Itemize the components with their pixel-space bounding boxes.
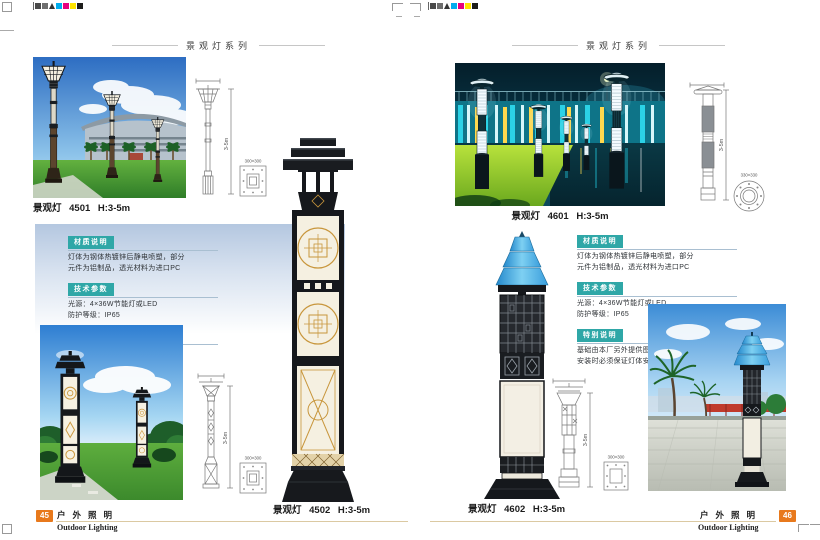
product-photo-4602 — [648, 304, 786, 491]
crop-mark-bottom-left — [2, 524, 12, 534]
section-badge: 特别说明 — [577, 329, 623, 342]
dimension-label: 3-5m — [583, 433, 589, 446]
section-rule — [577, 249, 737, 250]
info-text: 元件为铝制品，透光材料为进口PC — [577, 263, 737, 274]
info-text: 光源：4×36W节能灯或LED — [68, 300, 218, 311]
elevation-drawing-4601: 3-5m — [684, 80, 732, 208]
crop-bracket — [798, 524, 809, 532]
magenta-patch — [63, 3, 69, 9]
crop-mark-top-left — [2, 2, 12, 12]
grey-patch — [430, 3, 436, 9]
footer-title-en: Outdoor Lighting — [57, 523, 118, 532]
registration-color-bar-left — [33, 2, 83, 10]
crop-line-top-left — [0, 30, 14, 31]
info-section-material: 材质说明 灯体为钢体热镀锌后静电喷塑，部分 元件为铝制品，透光材料为进口PC — [68, 231, 218, 274]
product-label-4501: 景观灯 4501 H:3-5m — [33, 200, 130, 214]
section-rule — [68, 250, 218, 251]
info-section-material: 材质说明 灯体为钢体热镀锌后静电喷塑，部分 元件为铝制品，透光材料为进口PC — [577, 230, 737, 273]
series-header-right: 景观灯系列 — [512, 39, 725, 52]
header-rule — [659, 45, 725, 46]
section-badge: 材质说明 — [68, 236, 114, 249]
base-plan-4602: 300×300 — [601, 452, 631, 496]
elevation-drawing-4501: 3-5m — [192, 76, 238, 204]
registration-tick — [33, 2, 34, 10]
header-rule — [112, 45, 178, 46]
series-title: 景观灯系列 — [586, 39, 651, 52]
info-section-tech: 技术参数 光源：4×36W节能灯或LED 防护等级：IP65 — [68, 278, 218, 321]
photo-4601-scene — [455, 63, 665, 206]
base-plan-4502: 300×300 — [237, 453, 269, 499]
product-photo-4502 — [40, 325, 183, 500]
yellow-patch — [465, 3, 471, 9]
dimension-label: 3-5m — [719, 138, 725, 151]
dimension-label: 3-5m — [223, 431, 229, 444]
page-number-badge: 46 — [779, 510, 796, 522]
base-plan-4601: 330×330 — [731, 170, 767, 214]
photo-4501-scene — [33, 57, 186, 198]
product-render-4502 — [278, 136, 358, 502]
section-rule — [577, 296, 737, 297]
section-rule — [68, 297, 218, 298]
base-plan-4501: 300×300 — [237, 156, 269, 202]
magenta-patch — [458, 3, 464, 9]
grey-patch — [42, 3, 48, 9]
footer-rule — [56, 521, 408, 522]
product-photo-4601 — [455, 63, 665, 206]
product-label-4502: 景观灯 4502 H:3-5m — [273, 502, 370, 516]
product-photo-4501 — [33, 57, 186, 198]
black-patch — [472, 3, 478, 9]
registration-tick — [428, 2, 429, 10]
grey-patch — [35, 3, 41, 9]
black-patch — [77, 3, 83, 9]
crop-bracket — [392, 3, 403, 11]
catalog-spread: 景观灯系列 景观灯系列 — [0, 0, 820, 540]
section-badge: 技术参数 — [68, 283, 114, 296]
info-text: 元件为铝制品，透光材料为进口PC — [68, 264, 218, 275]
cyan-patch — [451, 3, 457, 9]
base-size-label: 300×300 — [245, 456, 262, 461]
info-text: 灯体为钢体热镀锌后静电喷塑，部分 — [577, 252, 737, 263]
base-size-label: 300×300 — [608, 455, 625, 460]
cyan-patch — [56, 3, 62, 9]
photo-4502-scene — [40, 325, 183, 500]
page-number-badge: 45 — [36, 510, 53, 522]
elevation-drawing-4602: 3-5m — [547, 377, 597, 497]
product-label-4602: 景观灯 4602 H:3-5m — [468, 501, 565, 515]
crop-bracket — [410, 3, 421, 11]
elevation-drawing-4502: 3-5m — [193, 372, 237, 502]
registration-triangle — [49, 3, 55, 9]
footer-title-cn: 户外照明 — [57, 509, 119, 521]
section-badge: 材质说明 — [577, 235, 623, 248]
series-header-left: 景观灯系列 — [112, 39, 325, 52]
dimension-label: 3-5m — [224, 137, 230, 150]
crop-dash — [414, 16, 420, 17]
product-label-4601: 景观灯 4601 H:3-5m — [455, 208, 665, 222]
grey-patch — [437, 3, 443, 9]
registration-triangle — [444, 3, 450, 9]
crop-dash — [396, 16, 402, 17]
info-text: 灯体为钢体热镀锌后静电喷塑，部分 — [68, 253, 218, 264]
header-rule — [259, 45, 325, 46]
footer-title-cn: 户外照明 — [700, 509, 762, 521]
base-size-label: 330×330 — [741, 173, 758, 178]
section-badge: 技术参数 — [577, 282, 623, 295]
footer-title-en: Outdoor Lighting — [698, 523, 759, 532]
base-size-label: 300×300 — [245, 159, 262, 164]
header-rule — [512, 45, 578, 46]
crop-bracket — [810, 524, 820, 532]
photo-4602-scene — [648, 304, 786, 491]
footer-rule — [430, 521, 776, 522]
registration-color-bar-center — [428, 2, 478, 10]
info-text: 防护等级：IP65 — [68, 311, 218, 322]
yellow-patch — [70, 3, 76, 9]
series-title: 景观灯系列 — [186, 39, 251, 52]
